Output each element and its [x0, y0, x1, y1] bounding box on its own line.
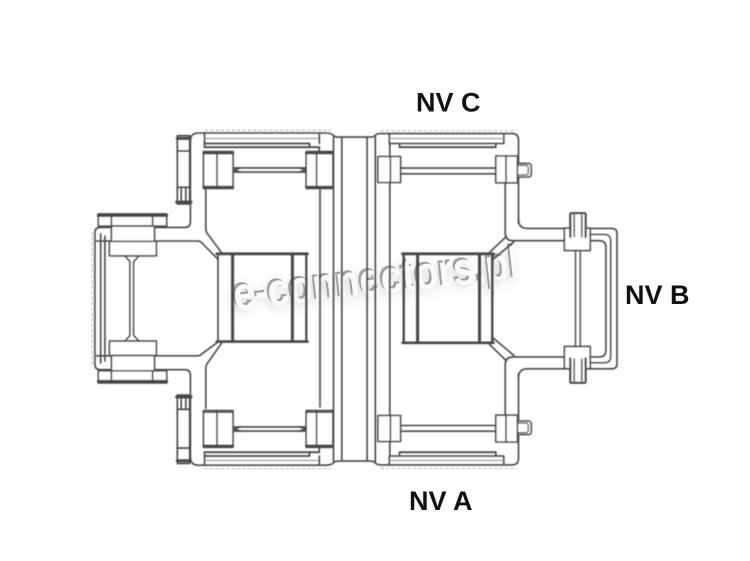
svg-text:NV C: NV C [416, 88, 481, 118]
svg-text:NV B: NV B [625, 280, 690, 310]
svg-text:NV A: NV A [409, 486, 473, 516]
